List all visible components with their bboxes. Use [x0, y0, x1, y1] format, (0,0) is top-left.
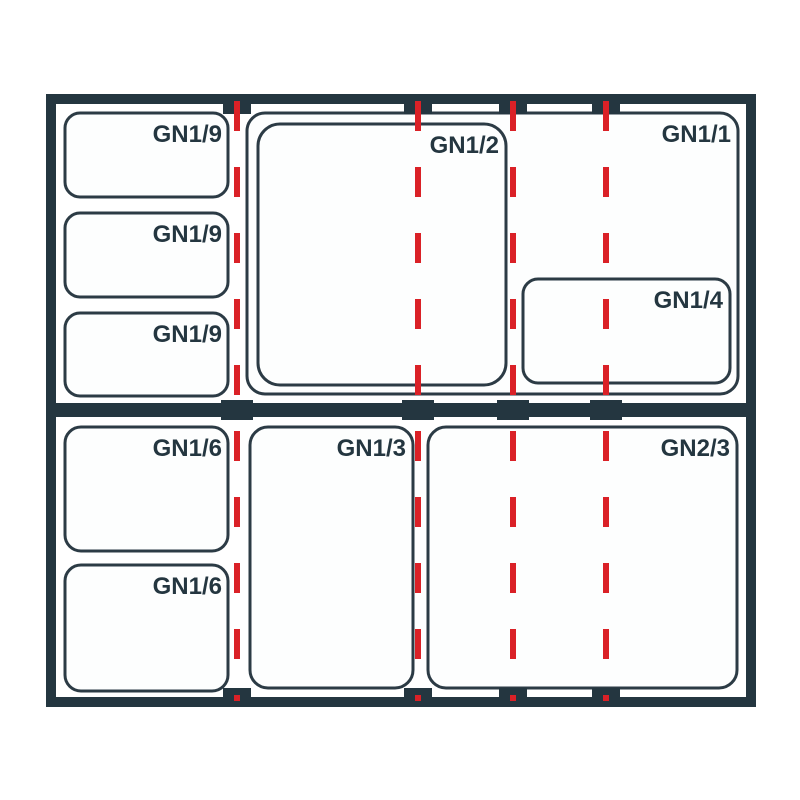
- container-gn1-9-b: GN1/9: [65, 213, 228, 297]
- container-gn1-6-b: GN1/6: [65, 565, 228, 691]
- container-gn1-4: GN1/4: [523, 279, 730, 383]
- container-gn1-6-a: GN1/6: [65, 427, 228, 551]
- container-gn1-9-a: GN1/9: [65, 113, 228, 197]
- gn-container-layout-diagram: GN1/9 GN1/9 GN1/9 GN1/1 GN1/2 GN1/4 GN1/…: [0, 0, 800, 800]
- rail-tick-middle-2: [402, 400, 434, 420]
- container-gn1-9-c: GN1/9: [65, 313, 228, 396]
- container-label: GN1/9: [153, 121, 222, 148]
- rail-tick-middle-3: [497, 400, 529, 420]
- frame-left-border: [46, 94, 56, 707]
- frame-middle-border: [46, 403, 756, 417]
- container-label: GN1/4: [654, 287, 724, 314]
- container-label: GN2/3: [661, 435, 730, 462]
- frame-bottom-border: [46, 697, 756, 707]
- container-label: GN1/6: [153, 435, 222, 462]
- frame-top-border: [46, 94, 756, 104]
- container-outline-gn1-3: [250, 427, 413, 688]
- container-label: GN1/1: [662, 121, 731, 148]
- container-gn2-3: GN2/3: [428, 427, 737, 688]
- container-label: GN1/9: [153, 321, 222, 348]
- rail-tick-middle-1: [221, 400, 253, 420]
- container-outline-gn2-3: [428, 427, 737, 688]
- container-outline-gn1-2: [258, 124, 506, 385]
- container-label: GN1/2: [430, 132, 499, 159]
- container-gn1-2: GN1/2: [258, 124, 506, 385]
- container-gn1-3: GN1/3: [250, 427, 413, 688]
- rail-tick-middle-4: [590, 400, 622, 420]
- container-label: GN1/6: [153, 573, 222, 600]
- top-frame: GN1/9 GN1/9 GN1/9 GN1/1 GN1/2 GN1/4: [65, 113, 738, 396]
- frame-right-border: [746, 94, 756, 707]
- container-label: GN1/3: [337, 435, 406, 462]
- container-label: GN1/9: [153, 221, 222, 248]
